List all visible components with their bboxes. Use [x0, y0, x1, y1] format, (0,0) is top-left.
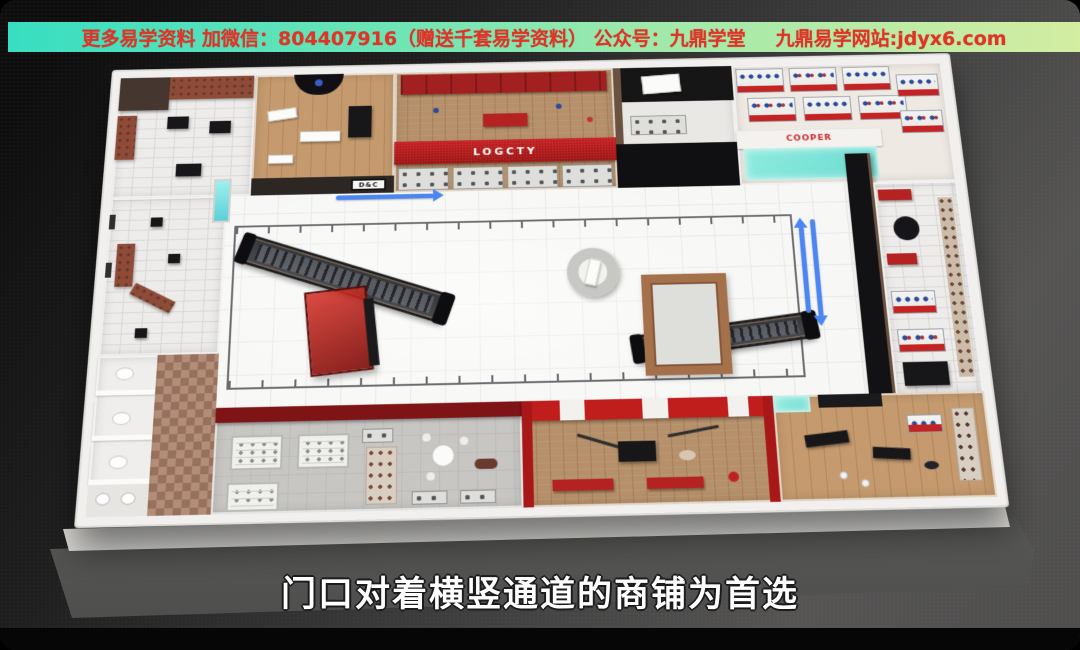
cafe-bench	[475, 458, 498, 469]
left-gallery	[98, 196, 227, 356]
equipment-item	[728, 472, 739, 483]
cafe-chair	[422, 433, 430, 441]
mall-3d-scene: D&C LOGCTY	[0, 0, 1080, 650]
mannequin	[433, 108, 439, 113]
shoe-display-wall	[951, 407, 983, 481]
equipment-propeller	[668, 425, 719, 438]
promo-banner-text: 更多易学资料 加微信：804407916（赠送千套易学资料） 公众号：九鼎学堂	[81, 24, 745, 51]
clothing-rack	[897, 328, 946, 352]
glass-display-black	[903, 361, 951, 386]
black-partition	[818, 393, 883, 407]
toilet-stall	[92, 399, 155, 441]
clothing-rack	[735, 68, 785, 93]
restroom-corridor	[147, 354, 219, 516]
wood-framed-void	[641, 273, 733, 376]
clothing-rack	[788, 67, 838, 92]
red-cabinet-wall	[401, 71, 607, 95]
entrance-mat-cyan	[772, 395, 810, 413]
round-rug	[892, 216, 920, 240]
brick-panel	[114, 116, 137, 160]
red-counter	[647, 476, 704, 489]
small-table	[168, 254, 181, 264]
red-counter	[552, 478, 613, 491]
shelf-sign	[362, 428, 393, 443]
black-storefront-counter	[616, 142, 740, 188]
brick-console	[114, 244, 135, 287]
display-table	[300, 131, 341, 142]
store-sign-logcty: LOGCTY	[394, 137, 617, 165]
sink	[120, 492, 136, 505]
clothing-rack	[891, 290, 938, 314]
wire-display-rack	[230, 435, 284, 471]
brick-bench	[129, 283, 175, 314]
cafe-chair	[460, 437, 468, 445]
chair	[839, 471, 848, 479]
video-subtitle-text: 门口对着横竖通道的商铺为首选	[281, 575, 799, 615]
clothing-rack	[895, 74, 940, 97]
promo-banner: 更多易学资料 加微信：804407916（赠送千套易学资料） 公众号：九鼎学堂 …	[8, 22, 1080, 52]
shop-dark-shelf	[118, 77, 170, 111]
shop-bottom-sports	[521, 396, 780, 508]
small-table	[134, 328, 147, 338]
toilet	[112, 412, 132, 425]
red-display-table	[483, 113, 527, 127]
chair	[861, 479, 870, 487]
video-frame: D&C LOGCTY	[0, 0, 1080, 650]
glass-display-case	[453, 166, 504, 189]
glass-display-case	[398, 167, 449, 190]
clothing-rack	[841, 66, 891, 91]
glass-display-case	[507, 165, 558, 188]
shop-bottom-left	[211, 401, 524, 514]
clothing-rack	[900, 110, 945, 133]
display-table	[175, 163, 201, 176]
equipment-box	[618, 441, 656, 462]
display-case	[412, 490, 448, 504]
restroom	[85, 354, 218, 518]
toilet	[108, 455, 128, 469]
wire-display-rack	[225, 482, 279, 512]
display-case	[460, 489, 496, 503]
mannequin	[587, 117, 593, 122]
cyan-display-board	[212, 179, 232, 223]
bottom-letterbox	[0, 628, 1080, 650]
cafe-chair	[426, 472, 434, 480]
clothing-rack	[802, 96, 852, 121]
mannequin	[556, 104, 562, 109]
clothing-rack	[747, 97, 797, 122]
shop-dark-counter	[613, 66, 740, 188]
glass-display-case	[630, 115, 687, 135]
kiosk-counter	[584, 258, 602, 286]
display-item	[924, 461, 940, 470]
shop-top-left	[111, 76, 256, 199]
red-glass-panel	[304, 285, 374, 377]
display-table	[268, 155, 294, 164]
sink	[95, 493, 111, 506]
promo-banner-website: 九鼎易学网站:jdyx6.com	[776, 24, 1007, 51]
video-subtitle: 门口对着横竖通道的商铺为首选	[0, 566, 1080, 617]
equipment-item	[679, 450, 696, 461]
store-sign-dc-label: D&C	[359, 181, 379, 189]
shop-bottom-right	[772, 391, 997, 502]
checkout-counter	[348, 106, 372, 138]
red-display-unit	[887, 253, 918, 265]
display-table	[267, 107, 297, 121]
wire-display-rack	[297, 433, 350, 469]
wall-picture	[109, 215, 116, 230]
red-storefront-pillars	[521, 396, 774, 422]
store-sign-dc: D&C	[351, 178, 386, 190]
black-display-table	[804, 430, 849, 447]
store-sign-cooper-label: COOPER	[786, 134, 833, 144]
small-table	[150, 217, 162, 226]
store-sign-logcty-label: LOGCTY	[473, 145, 538, 158]
clothing-rack	[906, 414, 943, 433]
toilet	[115, 367, 134, 380]
toilet-stall	[95, 355, 157, 396]
bottle-shelf	[365, 446, 397, 505]
glass-display-case	[562, 164, 614, 187]
equipment-propeller	[577, 433, 622, 449]
shop-cooper: COOPER	[731, 62, 957, 186]
display-table	[209, 121, 231, 134]
shop-logcty: LOGCTY	[394, 68, 618, 192]
black-display-table	[873, 447, 911, 460]
office-desk	[641, 73, 681, 94]
display-table	[167, 116, 189, 129]
mall-floorplan: D&C LOGCTY	[76, 55, 1007, 526]
brick-pegboard-wall	[169, 76, 254, 100]
shop-dc: D&C	[251, 73, 395, 196]
sink-counter	[85, 484, 149, 518]
toilet-stall	[88, 445, 152, 485]
red-display-unit	[878, 189, 912, 201]
cafe-round-table	[431, 443, 456, 468]
wall-picture	[105, 263, 112, 278]
